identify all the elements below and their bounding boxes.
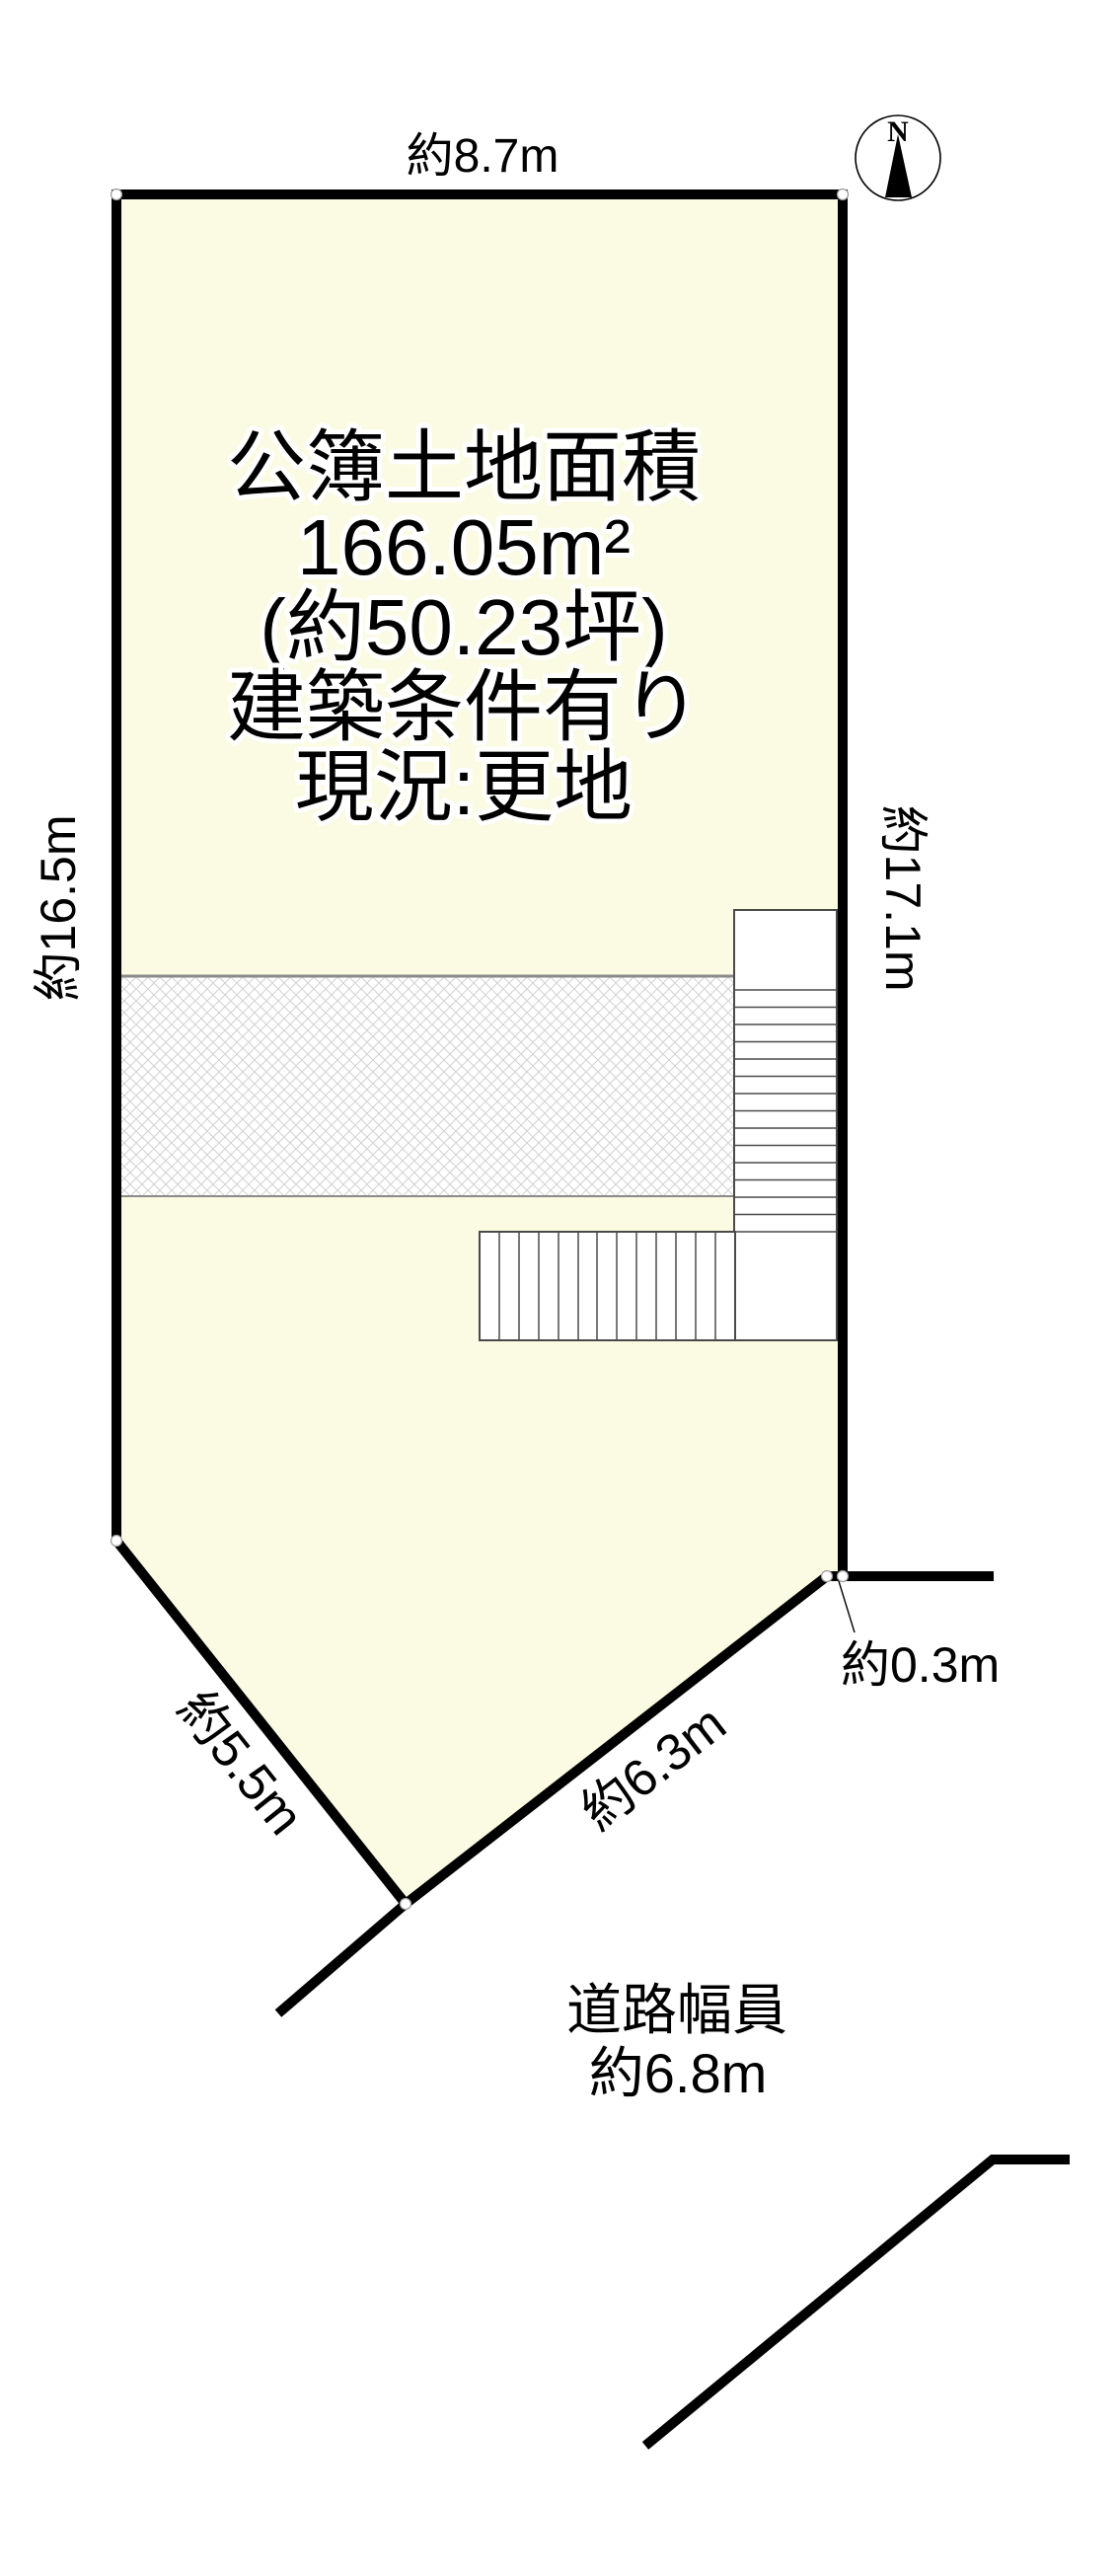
land-area-text-line-2: 166.05m² xyxy=(297,503,631,591)
stairs-horizontal xyxy=(480,1232,735,1340)
dimension-right-length: 約17.1m xyxy=(875,805,931,992)
vertex-marker xyxy=(838,1571,849,1582)
road-edge-line-left xyxy=(278,1904,406,2013)
vertex-marker xyxy=(822,1571,833,1582)
dimension-top-width: 約8.7m xyxy=(407,130,559,183)
vertex-marker xyxy=(112,189,122,200)
road-edge-line-far xyxy=(645,2159,1070,2446)
land-area-text: 公簿土地面積 166.05m² (約50.23坪) 建築条件有り 現況:更地 xyxy=(227,423,701,831)
road-width-label: 道路幅員 約6.8m xyxy=(566,1979,787,2104)
vertex-marker xyxy=(401,1899,411,1910)
step-callout-line xyxy=(839,1581,855,1632)
plot-diagram-svg: N 公簿土地面積 166.05m² (約50.23坪) 建築条件有り 現況:更地… xyxy=(0,0,1118,2576)
vertex-marker xyxy=(838,189,849,200)
land-area-text-line-3: (約50.23坪) xyxy=(260,583,667,671)
land-area-text-line-4: 建築条件有り xyxy=(227,663,701,751)
slope-hatch-area xyxy=(121,976,735,1196)
dimension-step-offset: 約0.3m xyxy=(841,1637,1000,1693)
vertex-marker xyxy=(112,1536,122,1547)
road-width-title: 道路幅員 xyxy=(566,1979,787,2041)
road-width-value: 約6.8m xyxy=(589,2042,768,2104)
land-plot-diagram: N 公簿土地面積 166.05m² (約50.23坪) 建築条件有り 現況:更地… xyxy=(0,0,1118,2576)
land-area-text-line-5: 現況:更地 xyxy=(295,743,633,831)
north-compass: N xyxy=(856,115,940,200)
stairs-vertical xyxy=(734,910,837,1340)
land-area-text-line-1: 公簿土地面積 xyxy=(227,423,701,511)
dimension-left-length: 約16.5m xyxy=(31,815,86,1002)
